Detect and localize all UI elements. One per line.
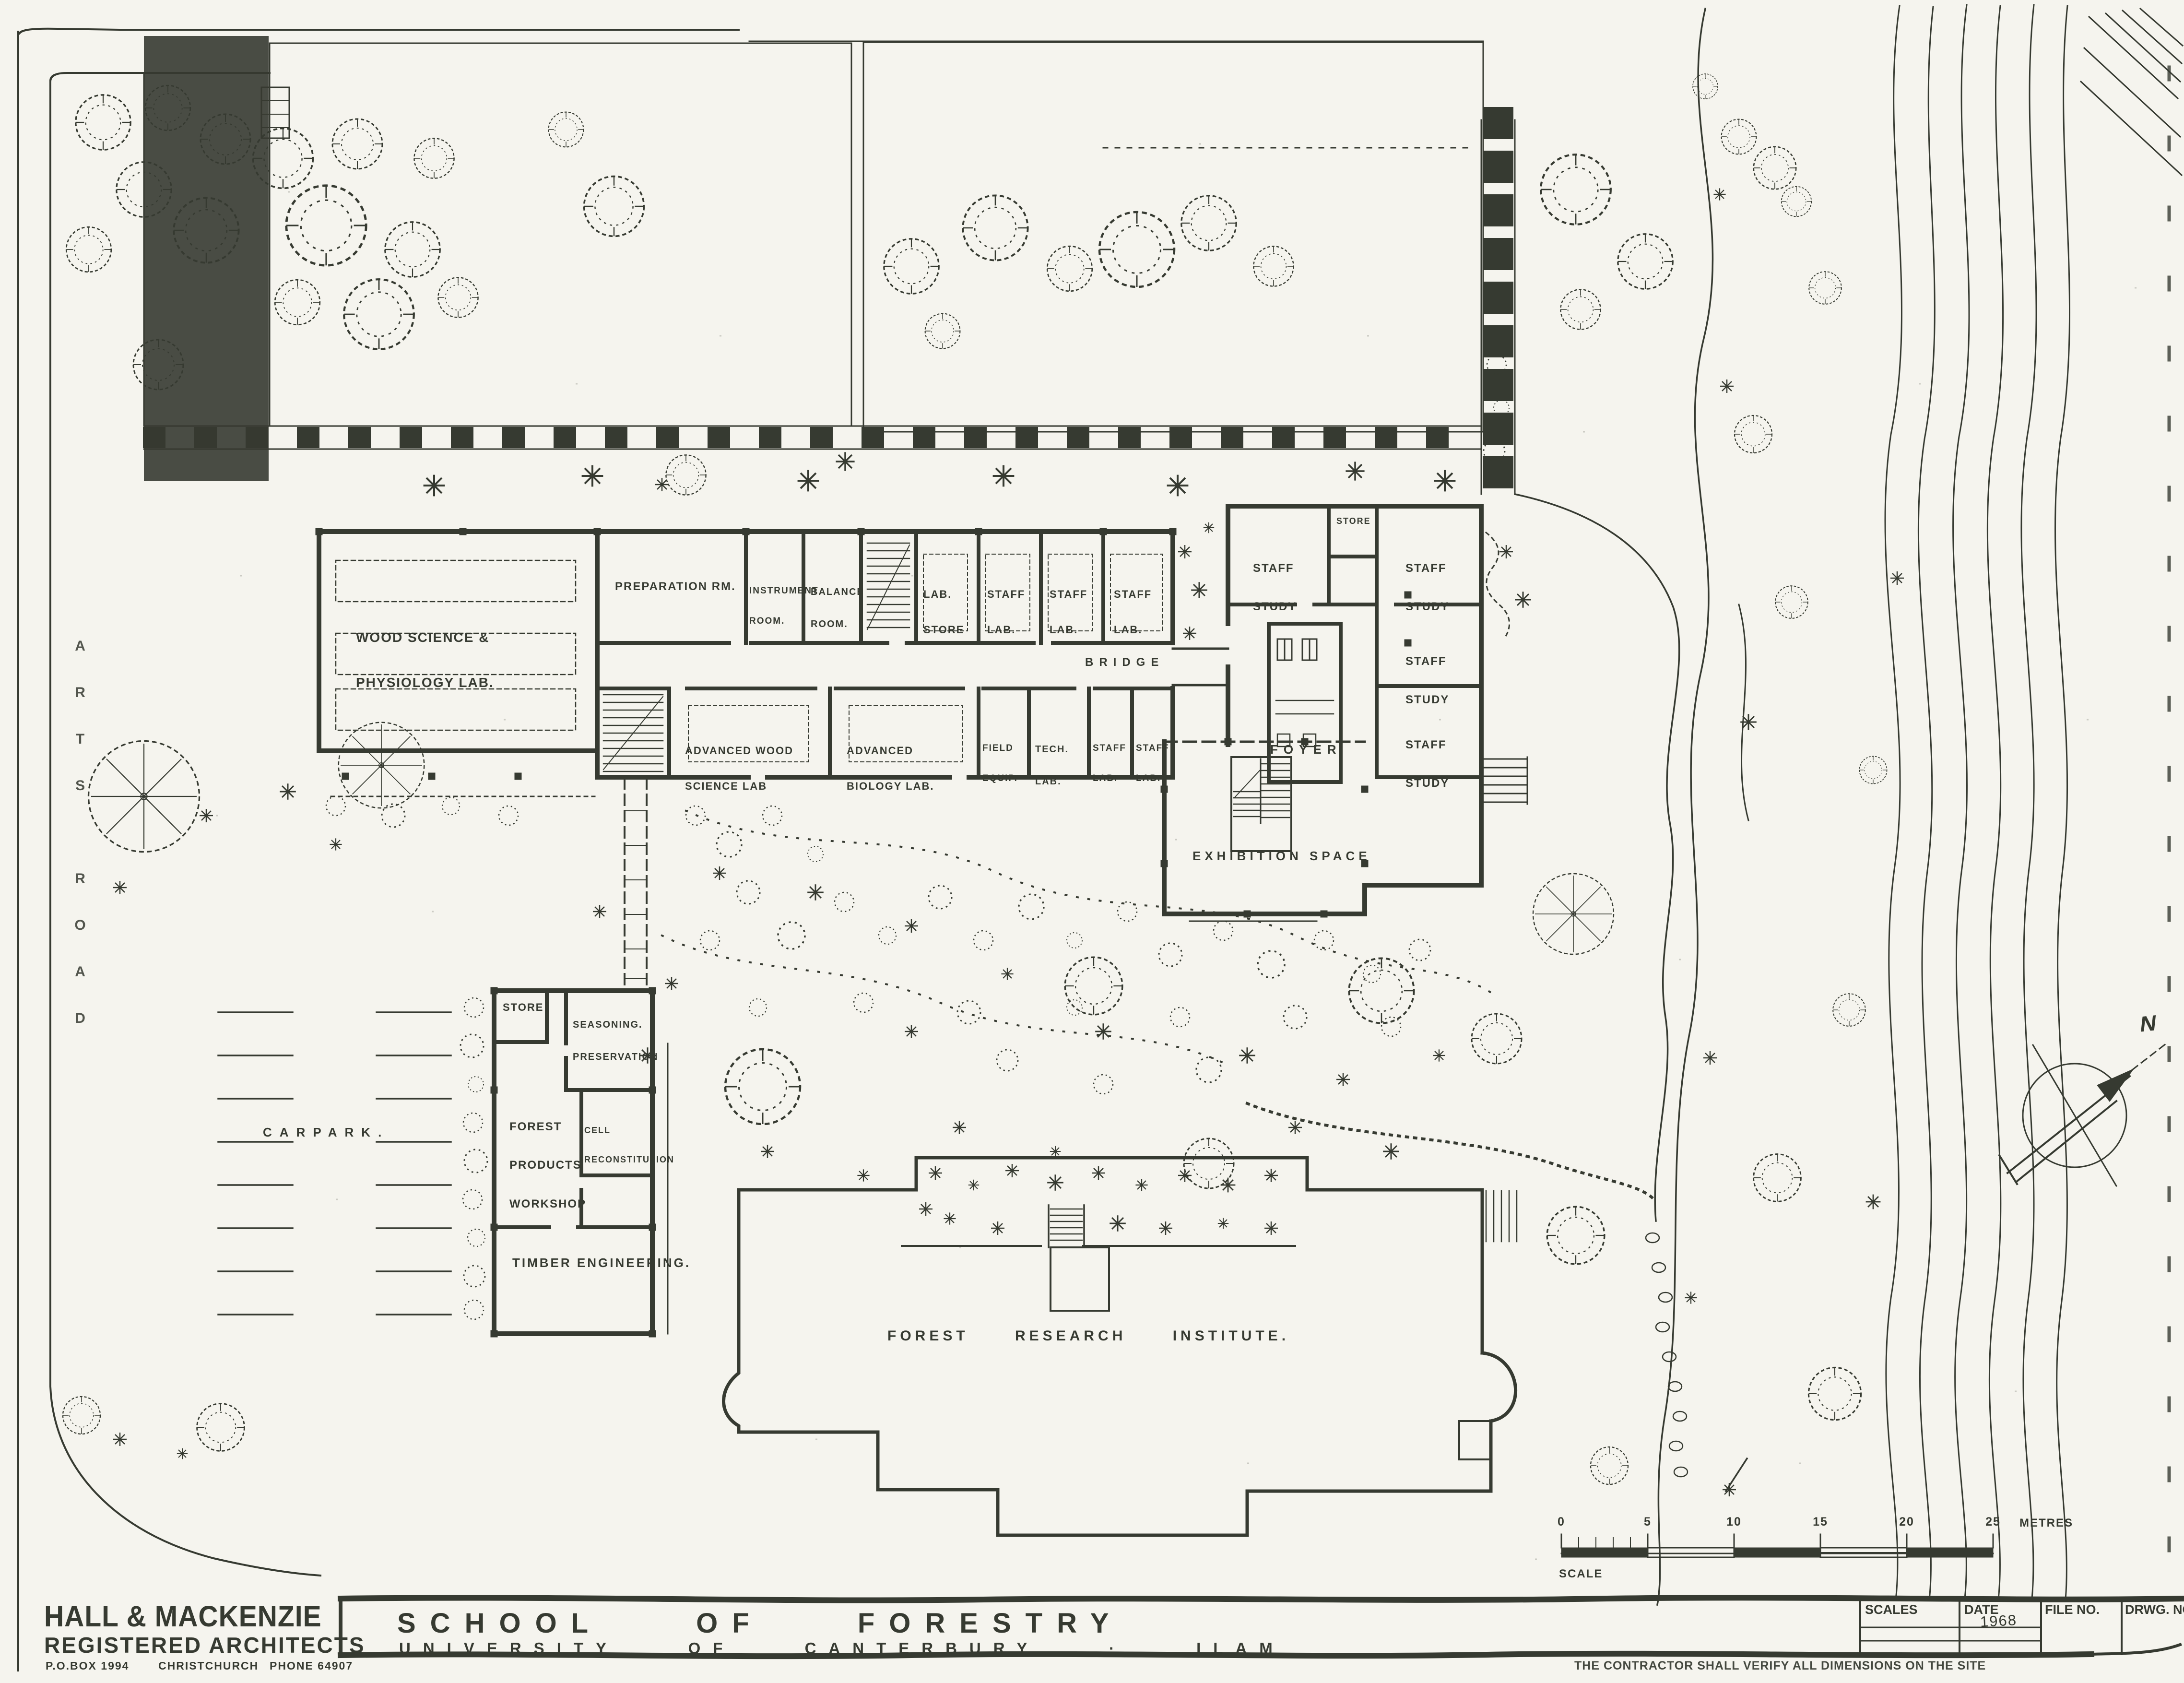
room-label-field-equip: FIELD EQUIP. [982,723,1018,794]
room-label-line: CELL [584,1126,674,1135]
room-label-line: PRESERVATION [573,1052,658,1062]
exhibition-space-walls [1164,742,1365,921]
plant-symbols [113,188,1904,1496]
room-label-staff-study-1: STAFF STUDY [1253,536,1297,627]
scan-speckles [216,144,2137,1559]
room-label-lab-store: LAB. STORE [923,565,964,648]
room-label-cell: CELL RECONSTITUTION [584,1106,674,1174]
room-label-instrument: INSTRUMENT ROOM. [749,565,819,637]
room-label-staff-lab-3: STAFF LAB. [1114,565,1152,648]
room-label-line: STAFF [1136,743,1169,753]
room-label-line: ADVANCED [847,745,934,757]
room-label-line: WORKSHOP [509,1198,586,1211]
stepping-stones [1646,1233,1688,1477]
sheet-subtitle: UNIVERSITY OF CANTERBURY · ILAM [399,1640,1285,1658]
room-label-timber: TIMBER ENGINEERING. [512,1256,691,1270]
room-label-line: SCIENCE LAB [685,781,793,793]
room-label-line: ROOM. [749,616,819,626]
room-label-line: STUDY [1405,694,1449,707]
room-label-line: FIELD [982,743,1018,753]
room-label-preparation: PREPARATION RM. [615,581,736,593]
room-label-line: EQUIP. [982,773,1018,783]
file-no-header: FILE NO. [2045,1602,2100,1617]
date-value: 1968 [1980,1612,2018,1631]
contractor-note: THE CONTRACTOR SHALL VERIFY ALL DIMENSIO… [1574,1659,2179,1675]
room-label-line: SEASONING. [573,1019,658,1030]
room-label-staff-study-2: STAFF STUDY [1405,536,1449,627]
scale-unit-label: METRES [2019,1517,2073,1530]
sheet-title: SCHOOL OF FORESTRY [397,1608,1123,1639]
room-label-line: STAFF [1114,589,1152,601]
room-label-line: WOOD SCIENCE & [356,630,494,645]
room-label-store: STORE [503,1002,543,1014]
room-label-line: STUDY [1405,601,1449,614]
room-label-adv-wood: ADVANCED WOOD SCIENCE LAB [685,722,793,804]
room-label-line: STAFF [1050,589,1087,601]
scale-tick-10: 10 [1726,1515,1742,1529]
room-label-line: BALANCE [811,587,864,597]
architect-phone: PHONE 64907 [270,1660,353,1672]
room-label-line: STORE [923,624,964,636]
room-label-line: PRODUCTS [509,1159,586,1172]
room-label-wood-science: WOOD SCIENCE & PHYSIOLOGY LAB. [356,600,494,705]
room-label-staff-lab-2: STAFF LAB. [1050,565,1087,648]
room-label-forest-products: FOREST PRODUCTS WORKSHOP [509,1095,586,1224]
architect-city: CHRISTCHURCH [158,1660,259,1672]
room-label-line: ROOM. [811,619,864,629]
arts-road-label: ARTS ROAD [72,638,88,1291]
room-label-line: INSTRUMENT [749,586,819,596]
room-label-line: BIOLOGY LAB. [847,781,934,793]
site-plan-sheet: ARTS ROAD WOOD SCIENCE & PHYSIOLOGY LAB.… [0,0,2184,1683]
exhibition-label: EXHIBITION SPACE [1192,849,1371,863]
room-label-line: TECH. [1035,744,1069,755]
room-label-line: LAB. [923,589,964,601]
room-label-line: LAB. [1114,624,1152,636]
scales-header: SCALES [1865,1602,1918,1617]
scale-label: SCALE [1559,1568,1603,1581]
carpark-label: CARPARK. [263,1126,389,1139]
foyer-label: FOYER [1270,743,1342,757]
scale-tick-15: 15 [1813,1515,1828,1529]
room-label-line: STAFF [987,589,1025,601]
scale-tick-25: 25 [1985,1515,2001,1529]
room-label-staff-study-4: STAFF STUDY [1405,713,1449,803]
bridge-link [1173,649,1228,685]
room-label-line: STAFF [1405,655,1449,668]
room-label-line: LAB. [1050,624,1087,636]
room-label-line: PHYSIOLOGY LAB. [356,675,494,690]
room-label-line: LAB. [1093,773,1126,783]
carpark-bays [218,1012,451,1315]
room-label-line: STAFF [1253,562,1297,575]
room-label-line: FOREST [509,1121,586,1134]
architect-type: REGISTERED ARCHITECTS [44,1633,366,1658]
scale-tick-0: 0 [1558,1515,1565,1529]
bridge-label: BRIDGE [1085,656,1164,669]
room-label-line: STAFF [1405,562,1449,575]
institute-label: FOREST RESEARCH INSTITUTE. [887,1328,1289,1344]
scale-tick-5: 5 [1644,1515,1652,1529]
room-label-balance: BALANCE ROOM. [811,565,864,640]
room-label-line: LAB. [1136,773,1169,783]
room-label-store-small: STORE [1336,516,1371,526]
drwg-no-header: DRWG. NO. [2125,1602,2184,1617]
room-label-line: ADVANCED WOOD [685,745,793,757]
room-label-line: STUDY [1253,601,1297,614]
lift-core [1276,639,1334,747]
room-label-tech-lab: TECH. LAB. [1035,723,1069,798]
room-label-staff-study-3: STAFF STUDY [1405,629,1449,720]
room-label-adv-bio: ADVANCED BIOLOGY LAB. [847,722,934,804]
room-label-line: LAB. [1035,776,1069,787]
room-label-line: STAFF [1405,739,1449,752]
room-label-staff-lab-5: STAFF LAB. [1136,723,1169,794]
research-institute-walls [724,1158,1517,1535]
north-arrow [1999,1042,2168,1186]
covered-link [625,778,647,990]
room-label-staff-lab-1: STAFF LAB. [987,565,1025,648]
entry-steps-east [1483,757,1527,804]
room-label-line: STUDY [1405,777,1449,790]
room-label-line: RECONSTITUTION [584,1155,674,1164]
architect-pobox: P.O.BOX 1994 [46,1660,129,1672]
room-label-seasoning: SEASONING. PRESERVATION [573,998,658,1073]
architect-name: HALL & MACKENZIE [44,1600,322,1634]
room-label-line: STAFF [1093,743,1126,753]
room-label-staff-lab-4: STAFF LAB. [1093,723,1126,794]
north-label: N [2139,1010,2159,1037]
site-plan-drawing [0,0,2184,1683]
stream [1657,5,2183,1605]
scale-tick-20: 20 [1899,1515,1914,1529]
room-label-line: LAB. [987,624,1025,636]
